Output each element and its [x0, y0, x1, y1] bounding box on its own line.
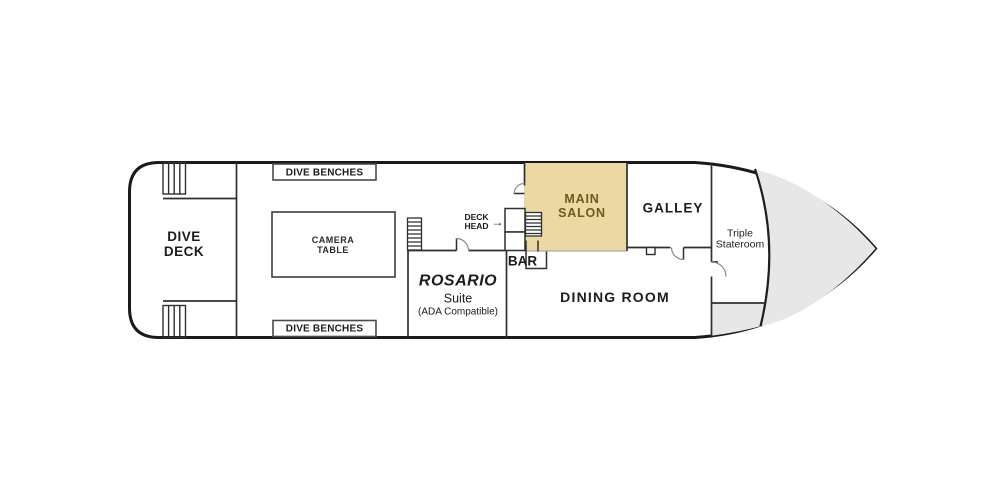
galley-counter-notch	[647, 248, 656, 255]
deck-plan-drawing	[0, 0, 1000, 500]
bar-label: BAR	[508, 253, 537, 268]
galley-label: GALLEY	[643, 200, 704, 215]
companionway-ladder	[408, 218, 422, 250]
dive-benches-bottom-label: DIVE BENCHES	[286, 323, 363, 334]
camera-table-label: CAMERA TABLE	[312, 234, 355, 254]
deck-plan: DIVE DECK DIVE BENCHES DIVE BENCHES CAME…	[0, 0, 1000, 500]
deck-head-label: DECK HEAD →	[464, 213, 503, 233]
deck-head-compartment	[505, 209, 525, 251]
triple-stateroom-label: Triple Stateroom	[716, 228, 764, 252]
deck-head-arrow-icon: →	[492, 217, 504, 229]
dive-deck-label: DIVE DECK	[164, 229, 204, 259]
rosario-suite-label: ROSARIO Suite (ADA Compatible)	[418, 272, 498, 317]
dive-benches-top-label: DIVE BENCHES	[286, 167, 363, 178]
main-salon-label: MAIN SALON	[558, 192, 606, 220]
salon-stairs	[526, 213, 542, 237]
dining-room-label: DINING ROOM	[560, 290, 670, 306]
